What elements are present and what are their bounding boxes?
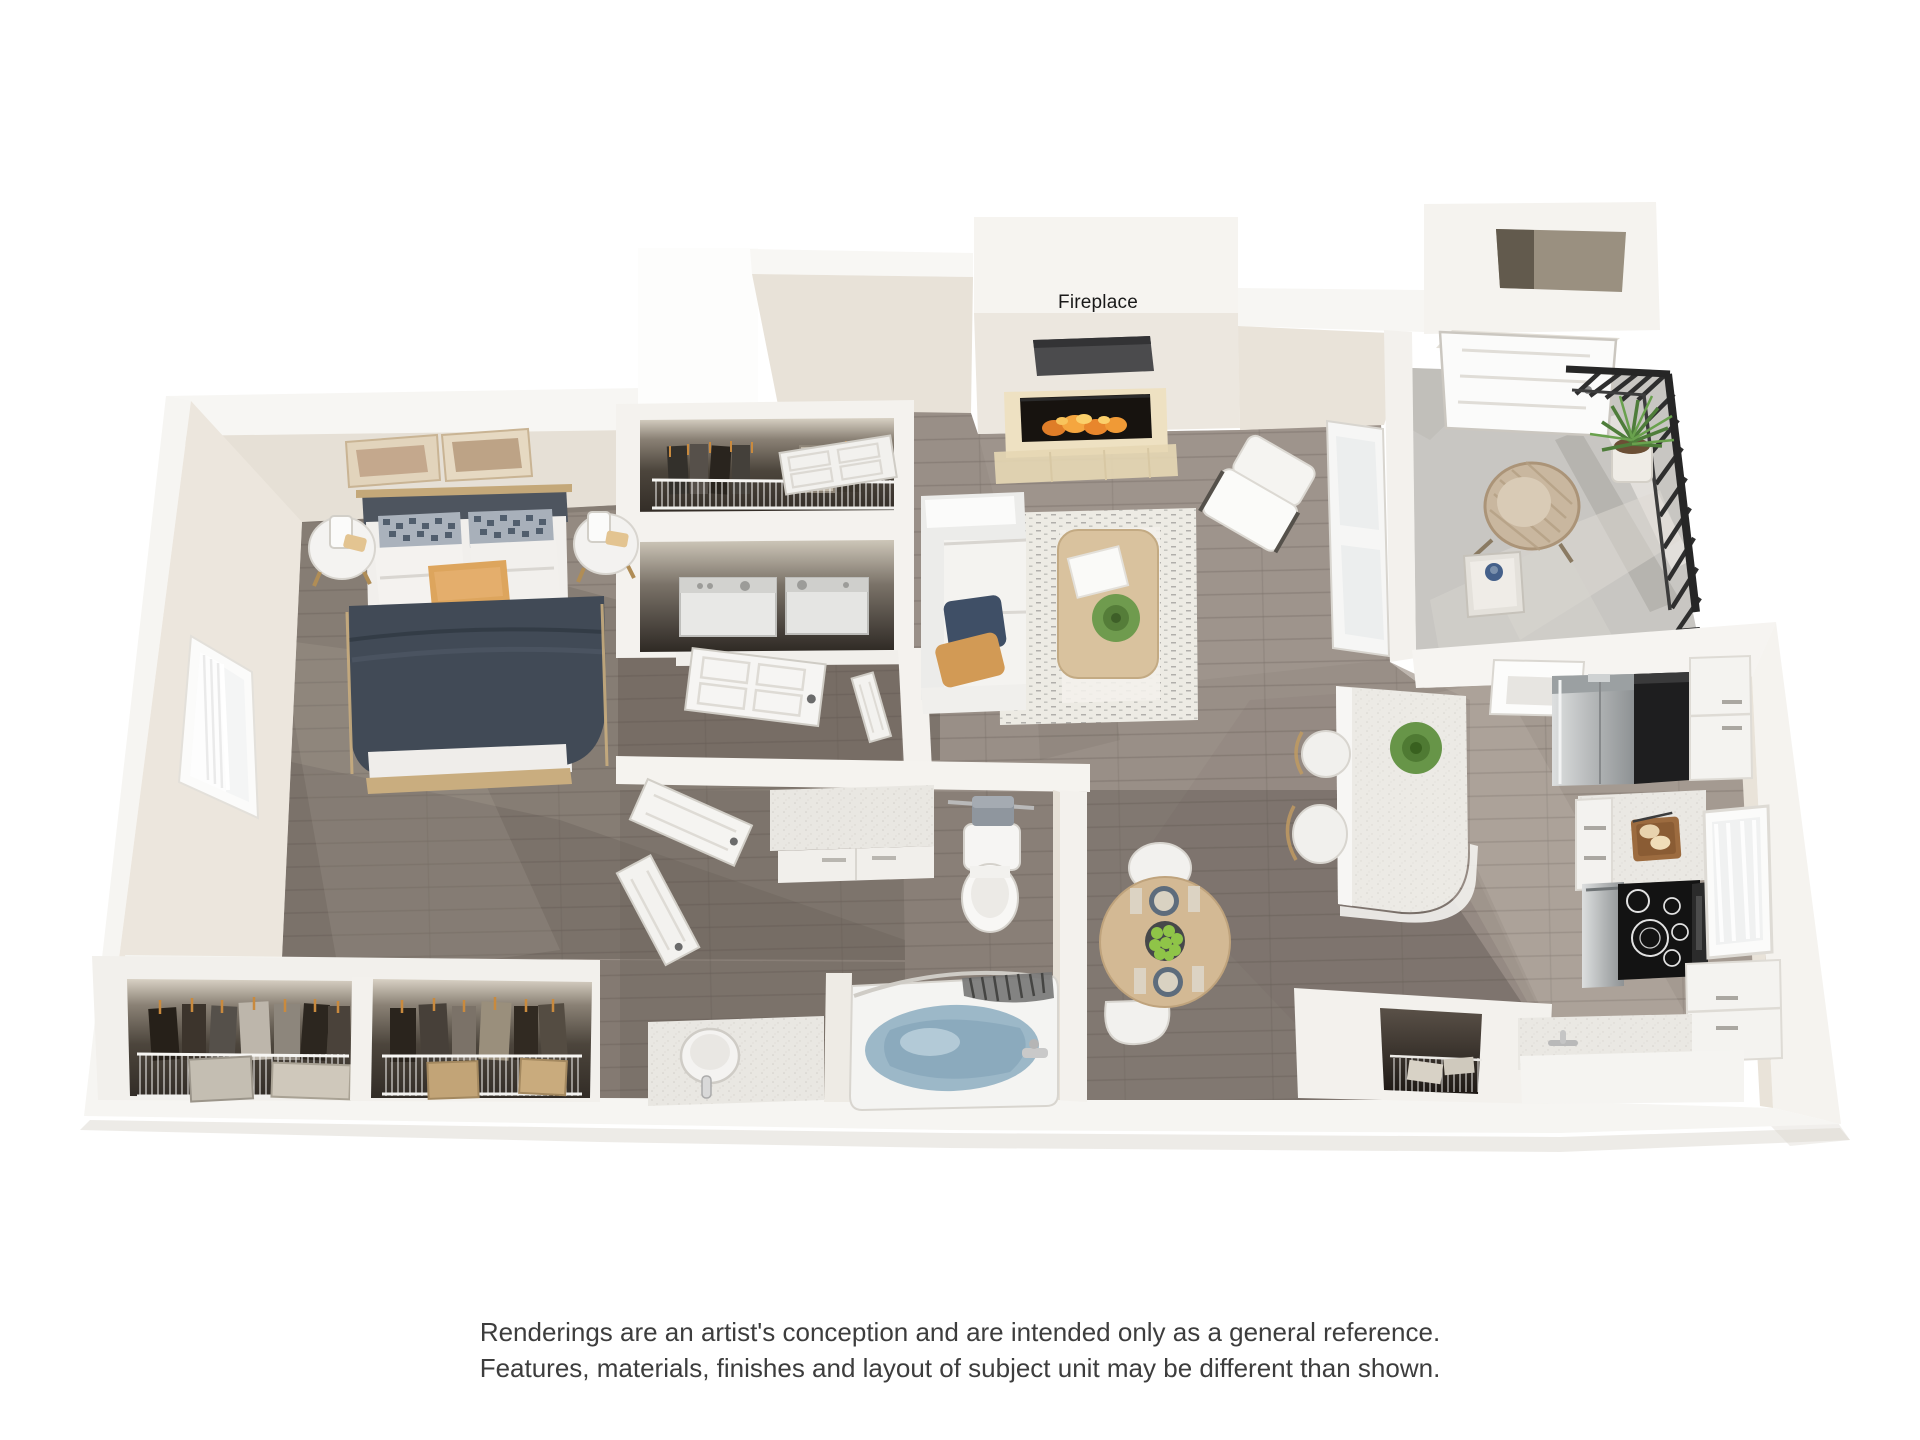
svg-text:Renderings are an artist's con: Renderings are an artist's conception an…	[480, 1317, 1440, 1347]
svg-text:Fireplace: Fireplace	[1058, 292, 1138, 313]
svg-text:Features, materials, finishes: Features, materials, finishes and layout…	[480, 1353, 1441, 1383]
